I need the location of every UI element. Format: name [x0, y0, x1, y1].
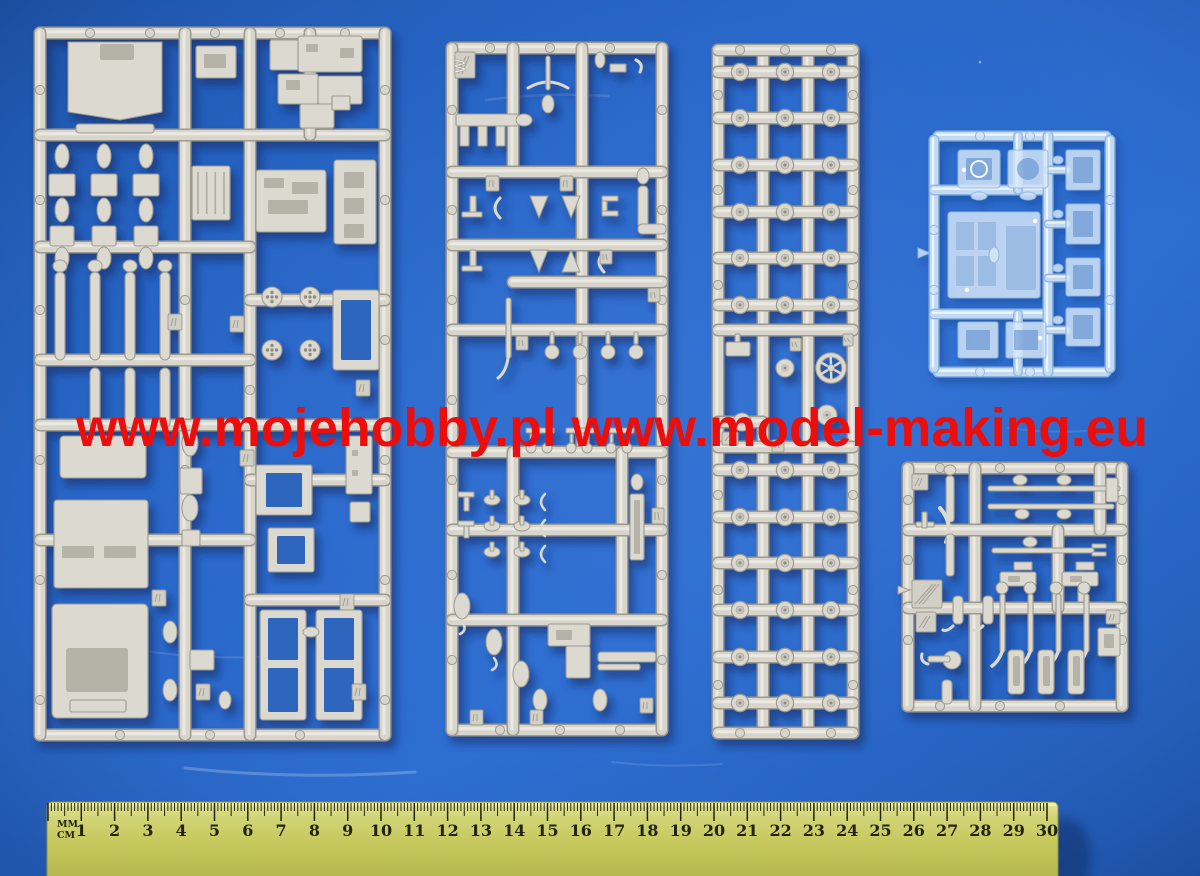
wheel-center [739, 117, 742, 120]
gate-knob [145, 28, 154, 37]
ruler-number: 26 [903, 821, 925, 840]
gate-pill [631, 474, 643, 490]
part-cutout [1014, 330, 1038, 350]
molded-part [54, 500, 148, 588]
brake-disc-center [308, 295, 311, 298]
gate-knob [1105, 295, 1114, 304]
gate-pill [88, 260, 102, 272]
molded-part [606, 332, 610, 344]
gate-knob [657, 570, 666, 579]
gate-knob [903, 495, 912, 504]
gate-knob [35, 455, 44, 464]
specular-highlight [1033, 219, 1037, 223]
gate-knob [848, 680, 857, 689]
ruler-number: 24 [836, 821, 858, 840]
part-recess [978, 222, 996, 250]
molded-part [92, 226, 116, 246]
scene-svg: W www.mojehobby.pl www.model-making.eu 1… [0, 0, 1200, 876]
gate-knob [657, 655, 666, 664]
gate-knob [657, 205, 666, 214]
molded-part [1014, 562, 1032, 570]
molded-part [50, 226, 74, 246]
molded-part [946, 534, 954, 576]
brake-disc-hole [266, 348, 269, 351]
part-recess [264, 178, 284, 188]
brake-disc-hole [313, 295, 316, 298]
molded-part [464, 526, 469, 538]
gate-knob [380, 335, 389, 344]
molded-part [922, 512, 927, 528]
molded-part [350, 502, 370, 522]
brake-disc-center [270, 295, 273, 298]
molded-part [91, 174, 117, 196]
gate-pill [1053, 316, 1063, 324]
ruler-number: 5 [209, 821, 220, 840]
gate-knob [295, 730, 304, 739]
ruler-number: 20 [703, 821, 725, 840]
gate-knob [848, 185, 857, 194]
part-cutout [1073, 265, 1093, 289]
molded-part [546, 56, 550, 90]
ruler-number: 6 [242, 821, 253, 840]
molded-part [458, 492, 474, 497]
gate-knob [605, 43, 614, 52]
brake-disc-hole [270, 300, 273, 303]
molded-part [928, 656, 950, 662]
part-cutout [1073, 211, 1093, 237]
molded-part [942, 680, 952, 704]
ruler-number: 15 [536, 821, 558, 840]
gate-pill [486, 629, 502, 655]
wheel-center [739, 656, 742, 659]
gate-knob [615, 725, 624, 734]
gate-knob [380, 695, 389, 704]
molded-part [638, 224, 666, 234]
part-recess [306, 44, 318, 52]
gate-knob [848, 280, 857, 289]
gate-knob [35, 575, 44, 584]
part-cutout [277, 536, 305, 564]
gate-knob [929, 285, 938, 294]
wheel-center [830, 304, 833, 307]
molded-part [90, 272, 100, 360]
gate-pill [513, 661, 529, 687]
brake-disc-hole [308, 300, 311, 303]
molded-part [76, 124, 154, 133]
ruler-number: 17 [603, 821, 625, 840]
gate-knob [447, 655, 456, 664]
gate-knob [735, 45, 744, 54]
molded-part [1000, 594, 1005, 652]
part-recess [286, 80, 300, 90]
wheel-center [784, 304, 787, 307]
round-part [573, 345, 587, 359]
molded-part [953, 596, 963, 624]
ruler-number: 30 [1036, 821, 1058, 840]
gate-knob [447, 295, 456, 304]
ruler-number: 28 [969, 821, 991, 840]
wheel-center [830, 211, 833, 214]
molded-part [490, 542, 494, 551]
ruler-number: 2 [109, 821, 120, 840]
part-cutout [324, 618, 354, 660]
wheel-center [739, 469, 742, 472]
molded-part [520, 490, 524, 499]
gate-knob [713, 490, 722, 499]
wheel-center [784, 562, 787, 565]
molded-part [70, 700, 126, 712]
part-cutout [268, 668, 298, 712]
wheel-center [739, 211, 742, 214]
part-cutout [1017, 158, 1039, 180]
part-recess [956, 256, 974, 286]
ruler-number: 4 [176, 821, 187, 840]
ruler-unit-mm: MM [57, 819, 79, 830]
gate-knob [780, 45, 789, 54]
part-recess [66, 648, 128, 692]
gate-knob [1117, 555, 1126, 564]
part-recess [344, 224, 364, 238]
gate-pill [1078, 582, 1090, 594]
gate-knob [380, 85, 389, 94]
gate-knob [903, 635, 912, 644]
part-recess [268, 200, 308, 214]
wheel-center [739, 304, 742, 307]
wheel-center [739, 609, 742, 612]
gate-pill [158, 260, 172, 272]
gate-knob [205, 730, 214, 739]
gate-knob [545, 43, 554, 52]
wheel-center [784, 164, 787, 167]
molded-part [602, 196, 618, 201]
ruler-number: 21 [736, 821, 758, 840]
wheel-center [784, 516, 787, 519]
molded-part [490, 516, 494, 525]
part-recess [1013, 656, 1020, 686]
gate-pill [593, 689, 607, 711]
wheel-center [830, 469, 833, 472]
gate-pill [219, 691, 231, 709]
gate-pill [97, 198, 111, 222]
molded-part [190, 650, 214, 670]
gate-pill [1053, 210, 1063, 218]
gate-pill [123, 260, 137, 272]
wheel-center [739, 257, 742, 260]
part-cutout [324, 668, 354, 712]
molded-part [300, 104, 334, 128]
gate-knob [826, 728, 835, 737]
wheel-center [830, 562, 833, 565]
molded-part [332, 96, 350, 110]
molded-part [180, 468, 202, 494]
part-recess [634, 500, 640, 554]
molded-part [458, 521, 474, 526]
gate-pill [971, 192, 987, 200]
part-recess [352, 470, 358, 476]
gate-knob [485, 43, 494, 52]
ruler-number: 27 [936, 821, 958, 840]
part-cutout [966, 330, 990, 350]
molded-part [49, 174, 75, 196]
ruler-number: 18 [636, 821, 658, 840]
wheel-center [784, 71, 787, 74]
wheel-center [784, 257, 787, 260]
wheel-center [830, 71, 833, 74]
molded-part [598, 664, 640, 670]
part-recess [556, 630, 572, 640]
molded-part [634, 332, 638, 344]
part-recess [1043, 656, 1050, 686]
molded-part [460, 126, 469, 146]
gate-knob [447, 475, 456, 484]
wheel-center [830, 117, 833, 120]
gate-knob [1025, 131, 1034, 140]
gate-knob [995, 701, 1004, 710]
ruler-number: 10 [370, 821, 392, 840]
gate-pill [163, 679, 177, 701]
molded-part [464, 497, 469, 511]
molded-part [602, 211, 618, 216]
gate-knob [713, 90, 722, 99]
gate-pill [533, 689, 547, 711]
gate-knob [1055, 701, 1064, 710]
gate-knob [35, 695, 44, 704]
gate-pill [303, 627, 319, 637]
gate-knob [1117, 495, 1126, 504]
molded-part [735, 334, 740, 342]
molded-part [550, 332, 554, 344]
part-recess [344, 198, 364, 214]
brake-disc-hole [308, 353, 311, 356]
gate-knob [848, 490, 857, 499]
gate-knob [975, 367, 984, 376]
gate-pill [1057, 475, 1071, 485]
molded-part [1092, 552, 1106, 556]
gate-pill [1053, 156, 1063, 164]
gate-pill [97, 144, 111, 168]
gate-pill [139, 198, 153, 222]
gate-knob [85, 28, 94, 37]
gate-pill [944, 465, 956, 475]
part-recess [956, 222, 974, 250]
ruler-number: 23 [803, 821, 825, 840]
molded-part [988, 504, 1114, 509]
gate-pill [55, 198, 69, 222]
gate-pill [1013, 475, 1027, 485]
brake-disc-hole [275, 295, 278, 298]
gate-pill [989, 247, 999, 263]
gate-knob [848, 90, 857, 99]
molded-part [992, 548, 1094, 553]
wheel-center [830, 516, 833, 519]
wheel-center [784, 211, 787, 214]
round-part [545, 345, 559, 359]
watermark-text: www.mojehobby.pl www.model-making.eu [75, 398, 1148, 458]
gate-pill [542, 95, 554, 113]
gate-pill [139, 144, 153, 168]
ruler-number: 3 [142, 821, 153, 840]
molded-letter-w: W [452, 58, 469, 73]
part-recess [344, 172, 364, 188]
gate-knob [1055, 463, 1064, 472]
molded-part [490, 490, 494, 499]
ruler-number: 25 [869, 821, 891, 840]
molded-part [578, 332, 582, 344]
part-recess [340, 48, 354, 58]
wheel-center [739, 516, 742, 519]
gate-knob [848, 585, 857, 594]
part-cutout [268, 618, 298, 660]
gate-knob [447, 105, 456, 114]
brake-disc-center [270, 348, 273, 351]
steering-wheel-hub [828, 365, 835, 372]
brake-disc-hole [270, 344, 273, 347]
gate-knob [210, 28, 219, 37]
part-cutout [1073, 315, 1093, 339]
brake-disc-hole [308, 344, 311, 347]
specular-highlight [962, 168, 966, 172]
gate-knob [577, 375, 586, 384]
gate-knob [447, 205, 456, 214]
gate-knob [780, 728, 789, 737]
ruler: 1234567891011121314151617181920212223242… [47, 802, 1091, 876]
wheel-center [784, 656, 787, 659]
gate-pill [182, 495, 198, 521]
gate-knob [735, 728, 744, 737]
molded-part [1076, 562, 1094, 570]
wheel-center [830, 257, 833, 260]
ruler-number: 29 [1003, 821, 1025, 840]
brake-disc-hole [308, 291, 311, 294]
molded-part [1106, 478, 1118, 502]
gate-knob [380, 195, 389, 204]
wheel-center [830, 609, 833, 612]
gate-pill [1057, 509, 1071, 519]
part-recess [1006, 226, 1036, 290]
gate-knob [826, 45, 835, 54]
gate-knob [555, 725, 564, 734]
part-recess [1008, 576, 1020, 582]
part-cutout [341, 300, 371, 360]
molded-part [462, 266, 482, 271]
dust-speck [979, 61, 982, 64]
molded-part [1056, 594, 1061, 652]
part-recess [204, 54, 226, 68]
ruler-number: 22 [769, 821, 791, 840]
part-cutout [266, 473, 302, 507]
gate-knob [1105, 195, 1114, 204]
gate-pill [139, 247, 153, 269]
gate-knob [1025, 367, 1034, 376]
brake-disc-center [308, 348, 311, 351]
gate-knob [975, 131, 984, 140]
wheel-center [739, 71, 742, 74]
part-recess [1070, 576, 1082, 582]
gate-pill [53, 260, 67, 272]
molded-part [726, 342, 750, 356]
molded-part [520, 542, 524, 551]
wheel-center [830, 656, 833, 659]
molded-part [55, 272, 65, 360]
gate-knob [903, 555, 912, 564]
gate-knob [995, 463, 1004, 472]
ruler-top-highlight [49, 803, 1056, 806]
gate-pill [1020, 192, 1036, 200]
brake-disc-hole [304, 295, 307, 298]
photo-model-kit-sprues: W www.mojehobby.pl www.model-making.eu 1… [0, 0, 1200, 876]
molded-part [1084, 594, 1089, 652]
gate-knob [115, 730, 124, 739]
molded-part [610, 64, 626, 72]
round-part [601, 345, 615, 359]
molded-part [134, 226, 158, 246]
gate-pill [55, 144, 69, 168]
part-recess [1073, 656, 1080, 686]
gate-knob [35, 195, 44, 204]
molded-part [506, 298, 511, 358]
gate-knob [35, 305, 44, 314]
wheel-center [784, 702, 787, 705]
gate-pill [1023, 537, 1037, 547]
gate-knob [935, 463, 944, 472]
molded-part [983, 596, 993, 624]
ruler-number: 9 [342, 821, 353, 840]
ruler-number: 19 [670, 821, 692, 840]
part-recess [100, 44, 134, 60]
ruler-number: 11 [403, 821, 425, 840]
ruler-number: 8 [309, 821, 320, 840]
wheel-center [739, 562, 742, 565]
gate-knob [495, 725, 504, 734]
specular-highlight [965, 288, 969, 292]
gate-pill [1050, 582, 1062, 594]
wheel-center [739, 164, 742, 167]
molded-part [598, 652, 656, 662]
part-cutout [1073, 157, 1093, 183]
part-recess [1104, 634, 1114, 648]
gate-pill [595, 52, 605, 68]
molded-part [1092, 544, 1106, 548]
brake-disc-hole [266, 295, 269, 298]
brake-disc-hole [313, 348, 316, 351]
gate-knob [657, 105, 666, 114]
brake-disc-hole [270, 353, 273, 356]
molded-part [456, 114, 518, 126]
brake-disc-hole [304, 348, 307, 351]
ruler-number: 12 [436, 821, 458, 840]
gate-pill [454, 593, 470, 619]
part-recess [62, 546, 94, 558]
wheel-center [784, 117, 787, 120]
molded-part [125, 272, 135, 360]
molded-part [133, 174, 159, 196]
gate-knob [180, 295, 189, 304]
part-recess [104, 546, 136, 558]
gate-knob [713, 680, 722, 689]
gate-knob [713, 585, 722, 594]
molded-part [520, 516, 524, 525]
part-recess [292, 182, 318, 194]
gate-knob [447, 570, 456, 579]
wheel-center [784, 469, 787, 472]
molded-part [566, 646, 590, 678]
ruler-number: 14 [503, 821, 525, 840]
molded-part [988, 486, 1120, 491]
ruler-number: 7 [276, 821, 287, 840]
gate-knob [929, 225, 938, 234]
gate-knob [713, 185, 722, 194]
wheel-center [739, 702, 742, 705]
